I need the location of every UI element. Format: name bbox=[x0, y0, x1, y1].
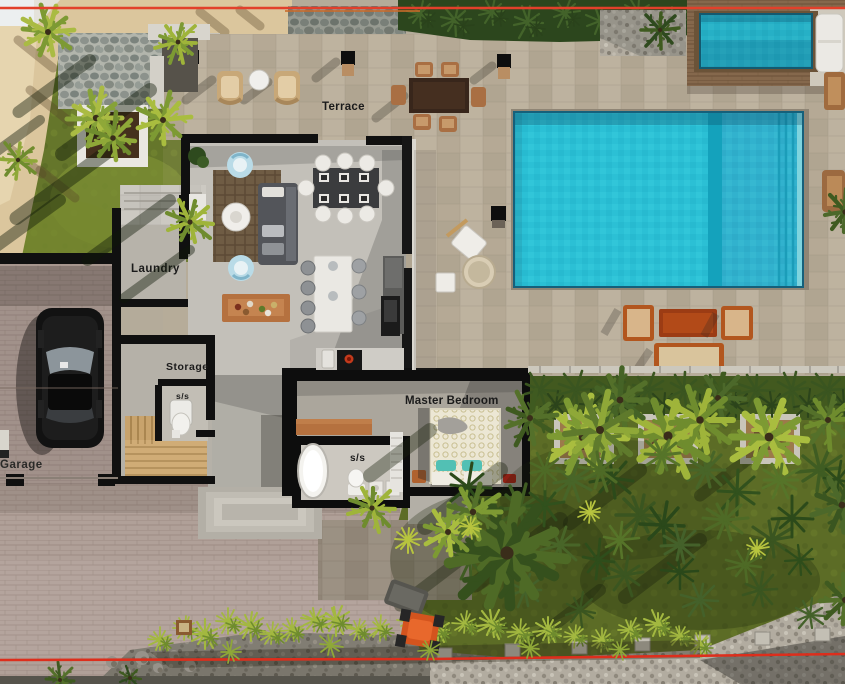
svg-text:Terrace: Terrace bbox=[322, 101, 365, 113]
svg-text:s/s: s/s bbox=[176, 391, 189, 401]
svg-text:Master Bedroom: Master Bedroom bbox=[405, 395, 499, 407]
svg-text:s/s: s/s bbox=[350, 453, 365, 464]
svg-text:Garage: Garage bbox=[0, 459, 43, 471]
svg-text:Storage: Storage bbox=[166, 361, 209, 373]
